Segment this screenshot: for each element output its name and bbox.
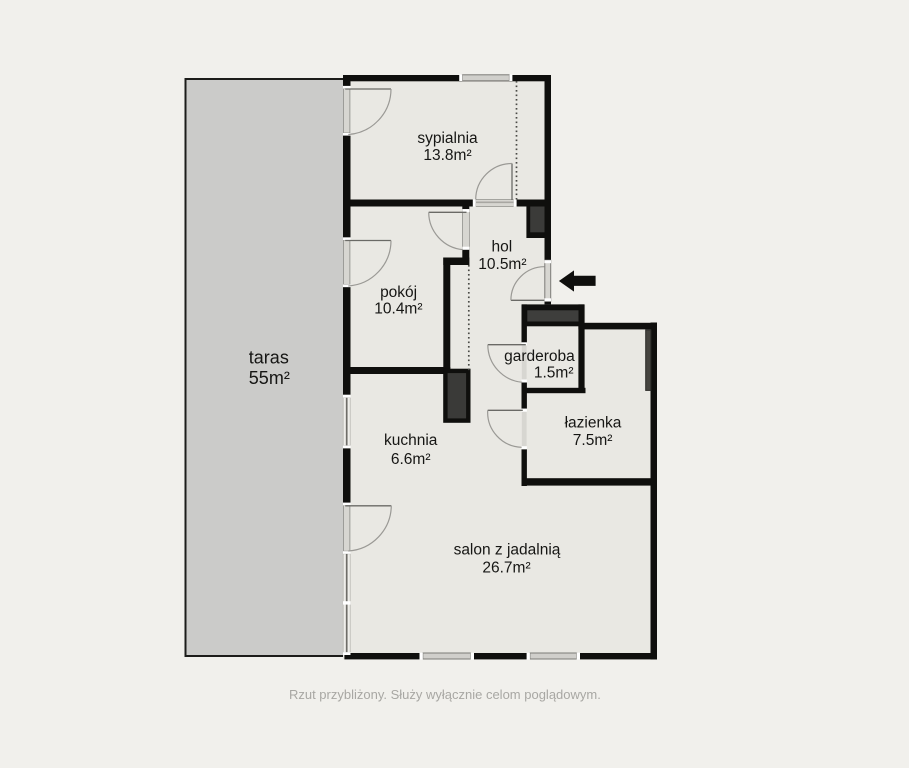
svg-text:26.7m²: 26.7m² bbox=[482, 559, 530, 576]
svg-text:7.5m²: 7.5m² bbox=[573, 432, 613, 449]
svg-text:Rzut przybliżony. Służy wyłącz: Rzut przybliżony. Służy wyłącznie celom … bbox=[289, 687, 601, 702]
svg-text:garderoba: garderoba bbox=[504, 348, 575, 365]
svg-text:6.6m²: 6.6m² bbox=[391, 451, 431, 468]
svg-text:salon z jadalnią: salon z jadalnią bbox=[454, 541, 561, 558]
svg-text:sypialnia: sypialnia bbox=[417, 130, 478, 147]
svg-text:55m²: 55m² bbox=[249, 368, 290, 388]
svg-text:kuchnia: kuchnia bbox=[384, 432, 438, 449]
svg-text:13.8m²: 13.8m² bbox=[423, 147, 471, 164]
svg-text:10.4m²: 10.4m² bbox=[374, 300, 422, 317]
svg-text:taras: taras bbox=[249, 348, 289, 368]
svg-text:1.5m²: 1.5m² bbox=[534, 365, 574, 382]
svg-text:pokój: pokój bbox=[380, 284, 417, 301]
svg-text:10.5m²: 10.5m² bbox=[478, 256, 526, 273]
svg-text:łazienka: łazienka bbox=[565, 415, 622, 432]
svg-text:hol: hol bbox=[491, 238, 512, 255]
